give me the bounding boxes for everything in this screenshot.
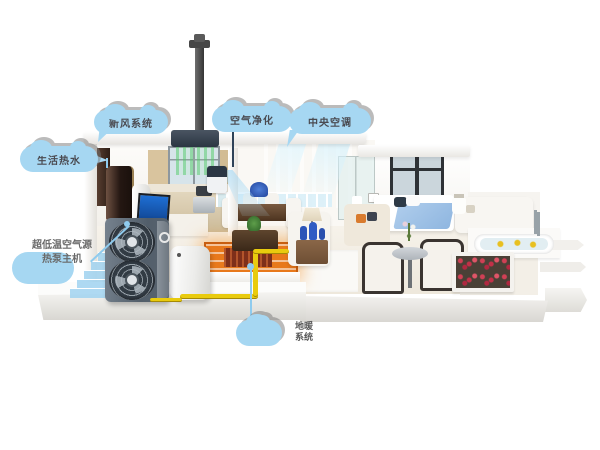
vent-pipe bbox=[195, 46, 204, 138]
chaise-lounge bbox=[344, 204, 390, 246]
tub-faucet bbox=[537, 212, 540, 236]
label-floor-heating-leader-dot bbox=[247, 263, 254, 270]
label-air-purify-leader bbox=[232, 130, 234, 167]
vent-cap-top bbox=[194, 34, 205, 42]
blue-vase bbox=[319, 228, 325, 240]
round-table-top bbox=[392, 247, 428, 260]
bathtub-water bbox=[480, 238, 548, 250]
bed-pillow bbox=[406, 196, 420, 206]
coffee-table bbox=[232, 230, 278, 251]
fan-hub bbox=[125, 235, 139, 249]
floor-lamp-shade bbox=[302, 208, 322, 221]
table-flowers bbox=[399, 218, 419, 248]
water-pipe-horizontal bbox=[253, 249, 289, 254]
platform-front-right bbox=[300, 296, 548, 322]
label-floor-heating: 地暖 系统 bbox=[284, 322, 324, 344]
wall-mounted-unit bbox=[207, 166, 227, 193]
label-floor-heating-line2: 系统 bbox=[284, 333, 324, 344]
water-pipe-horizontal bbox=[150, 298, 182, 302]
heat-pump-logo bbox=[159, 232, 170, 243]
label-floor-heating-cloud bbox=[236, 320, 282, 346]
label-heat-pump-line1: 超低温空气源 bbox=[14, 239, 110, 253]
hot-water-tank bbox=[106, 166, 134, 220]
label-heat-pump-line2: 热泵主机 bbox=[14, 253, 110, 267]
right-step-ledge bbox=[545, 288, 587, 312]
label-heat-pump: 超低温空气源 热泵主机 bbox=[14, 239, 110, 267]
blue-vase bbox=[300, 226, 307, 240]
pillow-charcoal bbox=[367, 212, 377, 221]
label-central-ac: 中央空调 bbox=[289, 108, 371, 134]
potted-plant bbox=[247, 216, 261, 231]
water-pipe-vertical bbox=[253, 251, 258, 297]
blue-vase bbox=[309, 222, 317, 240]
label-fresh-air: 新风系统 bbox=[94, 110, 168, 134]
label-hot-water-text: 生活热水 bbox=[37, 152, 81, 167]
round-table-leg bbox=[408, 258, 412, 288]
range-hood-unit bbox=[171, 130, 219, 147]
label-fresh-air-text: 新风系统 bbox=[109, 115, 153, 130]
cabinet-upper-left bbox=[148, 150, 168, 184]
label-floor-heating-leader bbox=[250, 268, 252, 321]
right-step-ledge bbox=[540, 262, 586, 272]
buffer-tank-button bbox=[177, 253, 181, 257]
label-heat-pump-leader-dot bbox=[124, 221, 130, 227]
label-floor-heating-line1: 地暖 bbox=[284, 322, 324, 333]
planter-flowers bbox=[456, 256, 510, 288]
heat-pump-fan-bottom bbox=[109, 260, 155, 300]
bedside-vase bbox=[452, 198, 466, 214]
label-hot-water: 生活热水 bbox=[20, 146, 98, 172]
right-sofa-pillow bbox=[466, 205, 475, 213]
label-central-ac-text: 中央空调 bbox=[308, 114, 352, 129]
stair-step bbox=[70, 288, 108, 298]
buffer-tank bbox=[170, 246, 210, 300]
label-air-purify: 空气净化 bbox=[212, 106, 292, 132]
side-table bbox=[296, 240, 328, 264]
fan-hub bbox=[125, 273, 139, 287]
water-pipe-horizontal bbox=[180, 294, 258, 299]
pillow-orange bbox=[356, 214, 366, 223]
heat-pump-house-illustration: 新风系统 空气净化 中央空调 生活热水 超低温空气源 热泵主机 地暖 系统 bbox=[0, 0, 600, 450]
label-air-purify-text: 空气净化 bbox=[230, 112, 274, 127]
heat-pump-fan-top bbox=[109, 222, 155, 262]
roof-right-slab bbox=[358, 145, 470, 157]
label-hot-water-leader bbox=[106, 158, 108, 168]
kitchen-oven bbox=[193, 197, 215, 213]
